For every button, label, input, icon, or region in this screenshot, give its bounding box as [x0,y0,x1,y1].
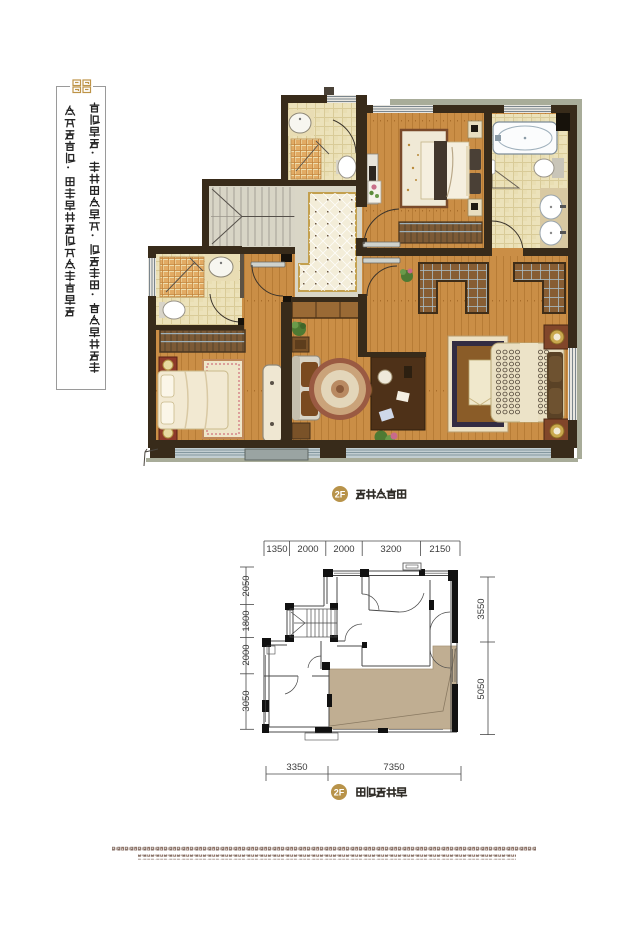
svg-text:2000: 2000 [297,544,318,555]
svg-text:2F: 2F [335,490,346,500]
svg-text:1350: 1350 [266,544,287,555]
svg-text:3350: 3350 [286,762,307,773]
svg-text:2F: 2F [334,788,345,798]
svg-text:3550: 3550 [476,598,487,619]
svg-text:2000: 2000 [241,644,252,665]
svg-text:2000: 2000 [333,544,354,555]
svg-text:5050: 5050 [476,678,487,699]
svg-text:2050: 2050 [241,575,252,596]
svg-text:3200: 3200 [380,544,401,555]
svg-text:7350: 7350 [383,762,404,773]
svg-text:2150: 2150 [429,544,450,555]
svg-text:3050: 3050 [241,690,252,711]
svg-text:1800: 1800 [241,610,252,631]
